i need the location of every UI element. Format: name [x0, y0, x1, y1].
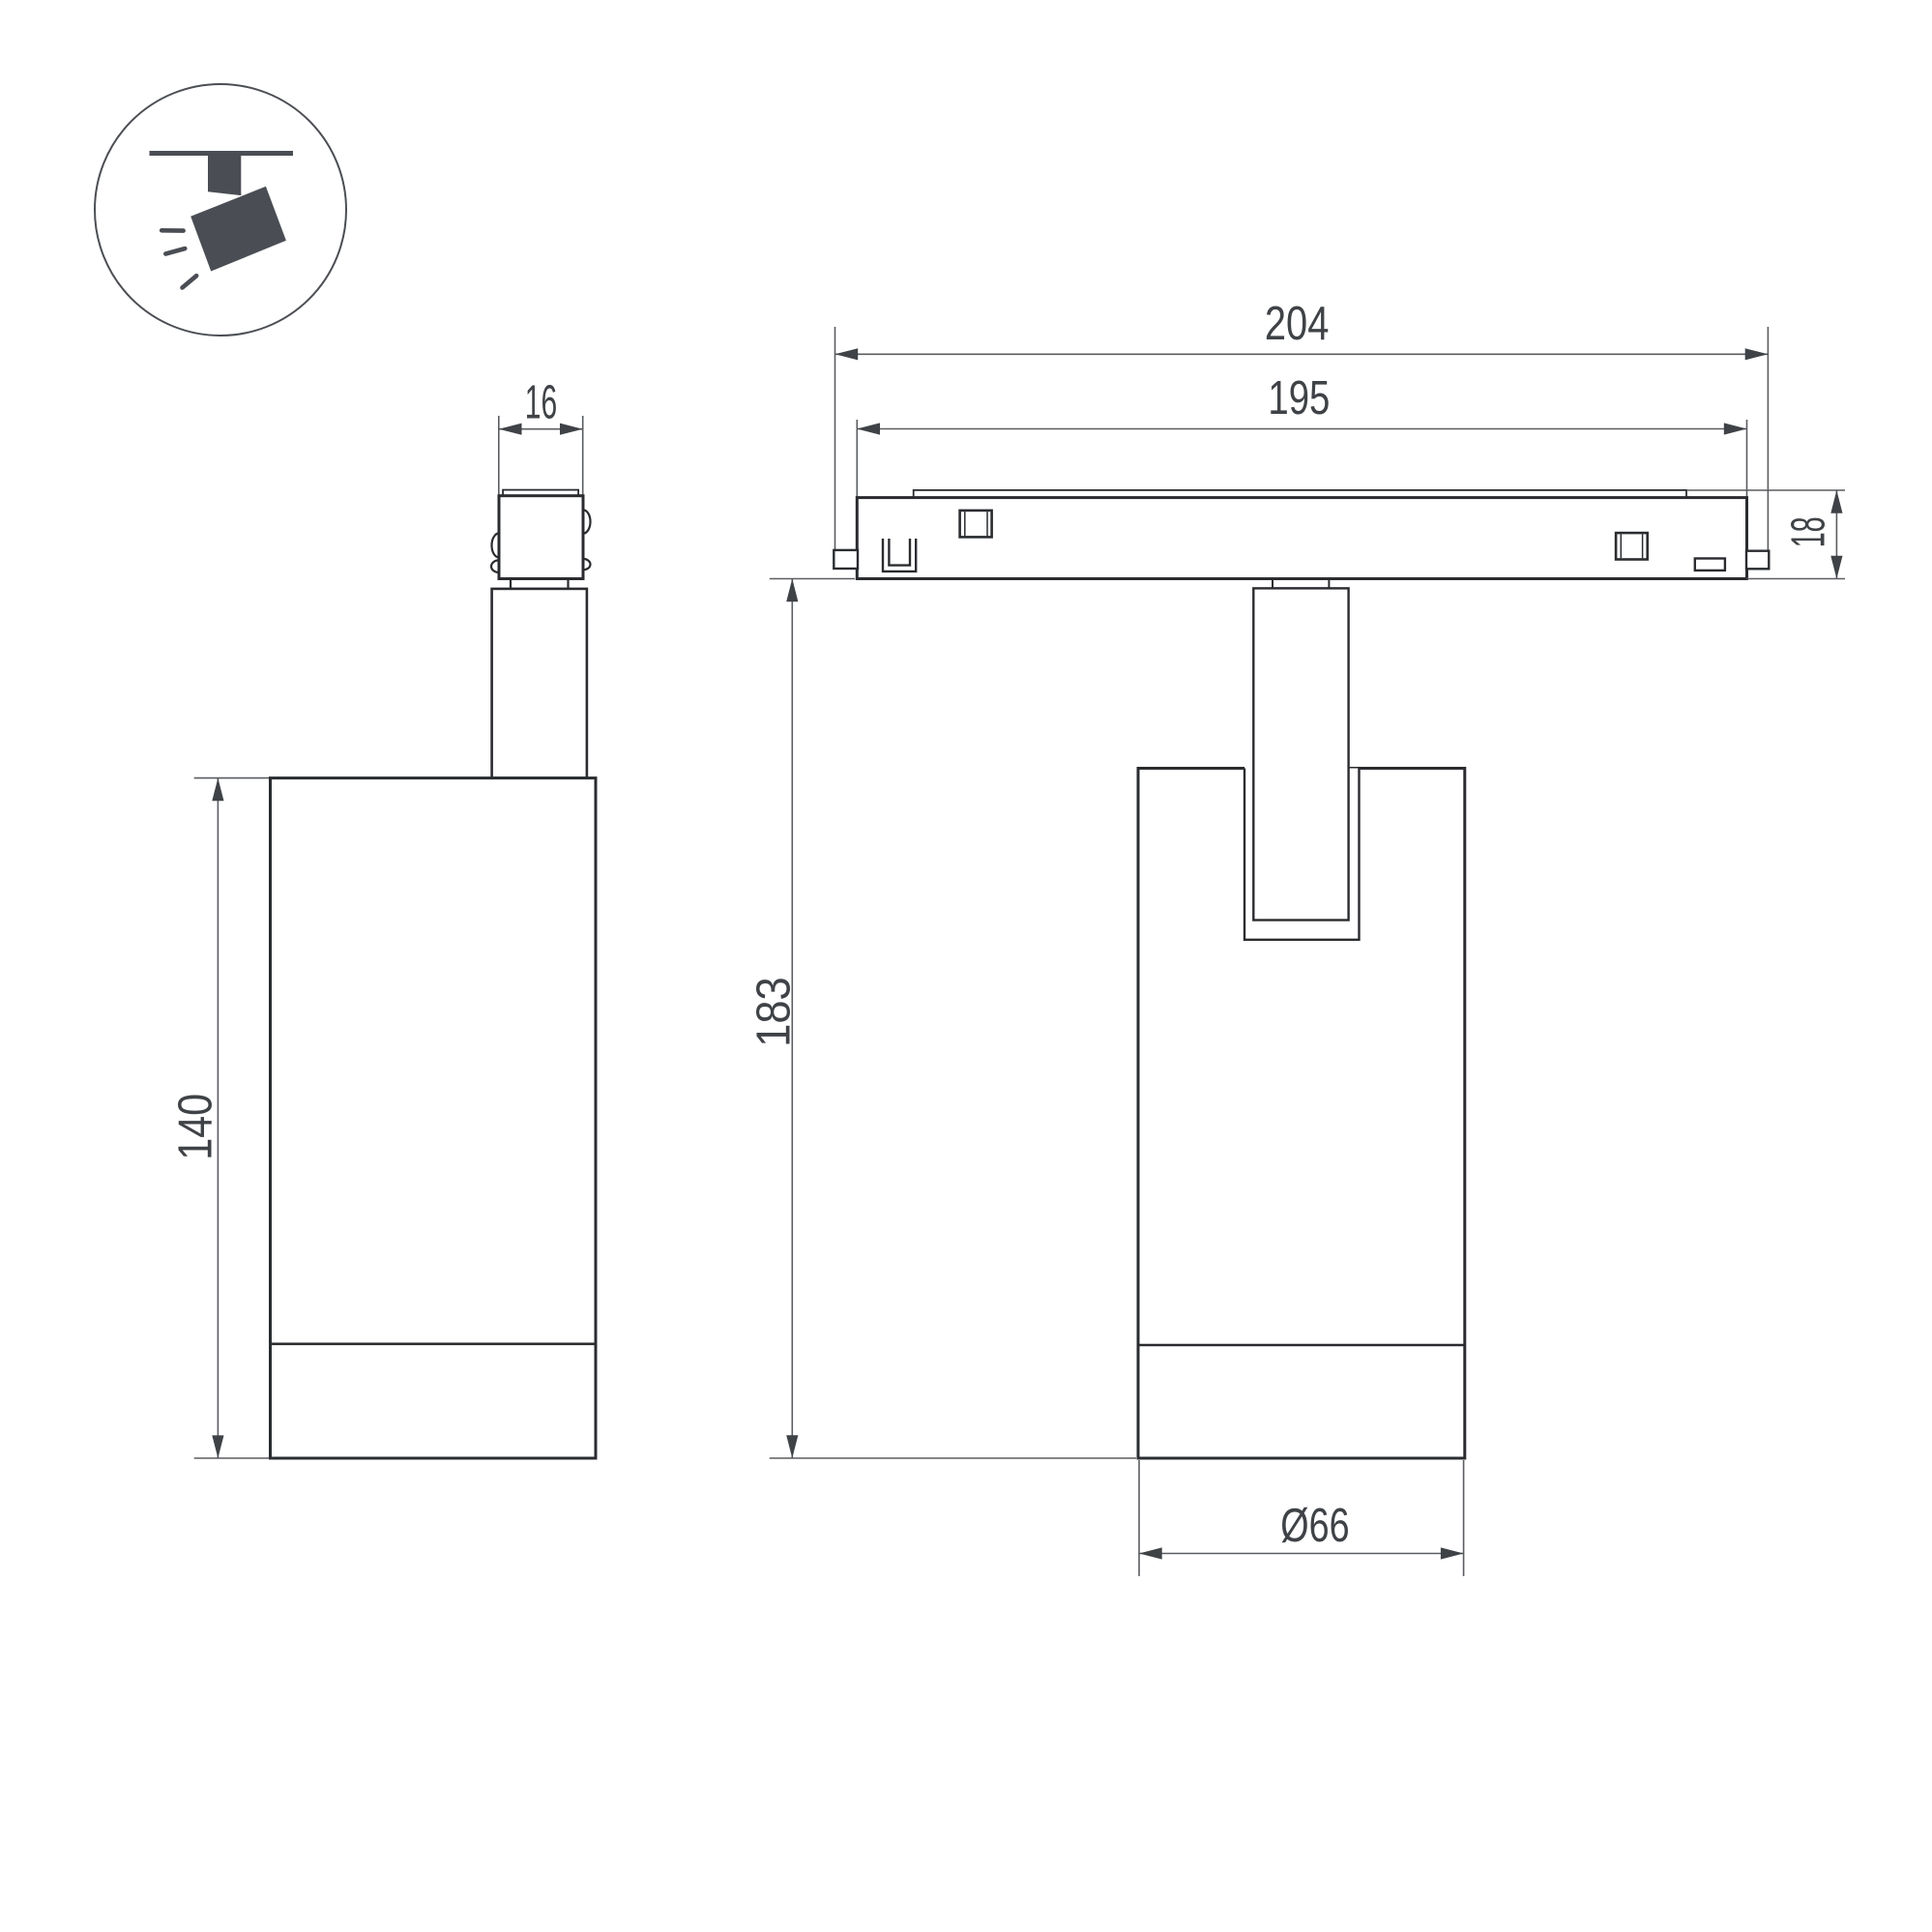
svg-text:18: 18 [1782, 516, 1834, 547]
svg-text:16: 16 [525, 376, 557, 428]
svg-text:183: 183 [748, 977, 801, 1047]
svg-text:140: 140 [169, 1094, 221, 1160]
svg-text:195: 195 [1268, 372, 1330, 424]
svg-text:204: 204 [1265, 298, 1330, 350]
svg-text:Ø66: Ø66 [1280, 1500, 1349, 1552]
